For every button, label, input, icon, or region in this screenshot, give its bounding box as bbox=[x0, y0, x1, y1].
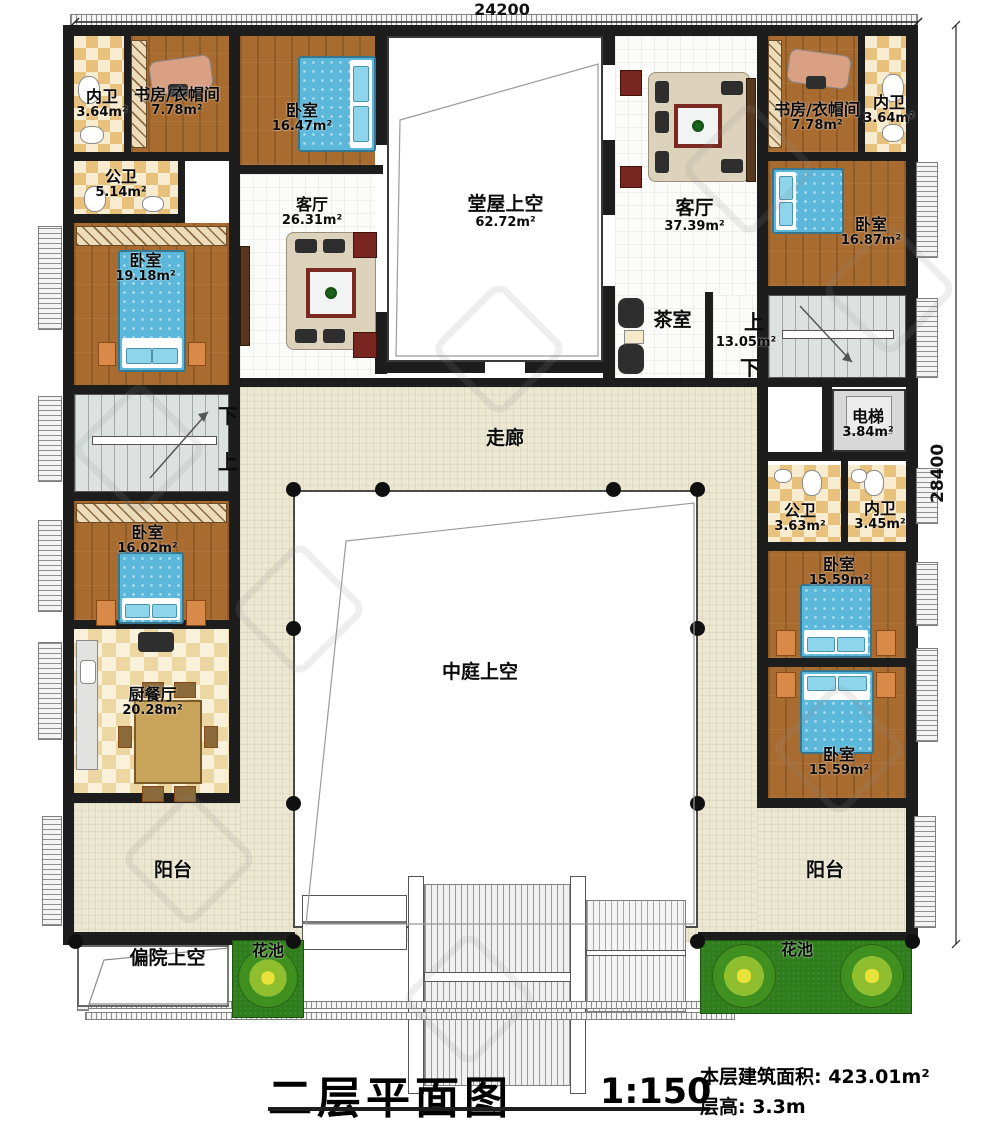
room-label-tea-area: 13.05m² bbox=[708, 336, 784, 351]
room-area: 20.28m² bbox=[95, 704, 210, 719]
column bbox=[690, 621, 705, 636]
tea-table bbox=[624, 330, 644, 344]
room-area: 5.14m² bbox=[76, 186, 166, 201]
window-hatch bbox=[38, 642, 62, 740]
window-hatch bbox=[42, 816, 62, 926]
room-label-elevator: 电梯 3.84m² bbox=[830, 408, 906, 441]
nightstand bbox=[188, 342, 206, 366]
room-name: 客厅 bbox=[632, 198, 757, 220]
side-table bbox=[353, 332, 377, 358]
room-name: 厨餐厅 bbox=[95, 686, 210, 704]
plant bbox=[325, 287, 337, 299]
room-label-bedroom-1687: 卧室 16.87m² bbox=[812, 216, 930, 249]
room-area: 19.18m² bbox=[88, 270, 203, 285]
courtyard-void bbox=[293, 490, 698, 928]
nightstand bbox=[98, 342, 116, 366]
pillow bbox=[837, 637, 865, 652]
room-label-bedroom-1559b: 卧室 15.59m² bbox=[780, 746, 898, 779]
room-name: 公卫 bbox=[76, 168, 166, 186]
pillow bbox=[807, 637, 835, 652]
column bbox=[375, 482, 390, 497]
nightstand bbox=[876, 672, 896, 698]
dining-chair bbox=[204, 726, 218, 748]
window-hatch bbox=[914, 816, 936, 928]
pillow bbox=[152, 348, 178, 364]
room-name: 电梯 bbox=[830, 408, 906, 426]
room-label-living-left: 客厅 26.31m² bbox=[252, 196, 372, 229]
room-label-flower-bed-left: 花池 bbox=[236, 942, 300, 960]
room-name: 公卫 bbox=[762, 502, 838, 520]
room-name: 茶室 bbox=[640, 310, 705, 332]
nightstand bbox=[876, 630, 896, 656]
wall-segment bbox=[63, 152, 233, 161]
sink bbox=[851, 469, 867, 483]
room-name: 卧室 bbox=[243, 102, 361, 120]
room-area: 3.63m² bbox=[762, 520, 838, 535]
wall-segment bbox=[757, 658, 915, 667]
room-label-bath-right: 内卫 3.45m² bbox=[842, 500, 918, 533]
room-area: 16.02m² bbox=[90, 542, 205, 557]
window-hatch bbox=[38, 226, 62, 330]
sofa-cushion bbox=[323, 239, 345, 253]
sofa-cushion bbox=[655, 111, 669, 133]
wall-segment bbox=[63, 25, 918, 36]
column bbox=[286, 796, 301, 811]
room-area: 15.59m² bbox=[780, 764, 898, 779]
room-label-balcony-left: 阳台 bbox=[138, 860, 208, 882]
walkway-left bbox=[302, 895, 407, 950]
dining-chair bbox=[142, 786, 164, 802]
sofa-cushion bbox=[295, 239, 317, 253]
room-label-living-right: 客厅 37.39m² bbox=[632, 198, 757, 235]
wall-segment bbox=[63, 25, 74, 944]
wall-segment bbox=[603, 286, 615, 387]
room-label-public-bath-right: 公卫 3.63m² bbox=[762, 502, 838, 535]
room-area: 3.64m² bbox=[850, 112, 928, 127]
room-name: 卧室 bbox=[88, 252, 203, 270]
window-hatch bbox=[916, 648, 938, 742]
side-table bbox=[620, 166, 642, 188]
column bbox=[690, 934, 705, 949]
floor-height-text: 层高: 3.3m bbox=[700, 1092, 806, 1119]
dining-chair bbox=[118, 726, 132, 748]
pillow bbox=[126, 348, 152, 364]
closet-hatch-bedroom-1918 bbox=[76, 226, 227, 246]
walkway-right-landing bbox=[586, 950, 686, 956]
room-name: 阳台 bbox=[138, 860, 208, 882]
room-area: 62.72m² bbox=[438, 216, 573, 231]
column bbox=[286, 482, 301, 497]
wall-segment bbox=[757, 452, 918, 461]
room-label-kitchen-dining: 厨餐厅 20.28m² bbox=[95, 686, 210, 719]
room-name: 卧室 bbox=[780, 556, 898, 574]
walkway-right-steps bbox=[586, 900, 686, 1012]
wall-segment bbox=[375, 25, 387, 145]
room-area: 16.87m² bbox=[812, 234, 930, 249]
room-name: 内卫 bbox=[850, 94, 928, 112]
stair-up-label-left: 上 bbox=[218, 446, 238, 475]
room-area: 26.31m² bbox=[252, 214, 372, 229]
column bbox=[68, 934, 83, 949]
room-label-corridor: 走廊 bbox=[465, 428, 545, 450]
pillow bbox=[125, 604, 150, 618]
column bbox=[690, 482, 705, 497]
bed bbox=[800, 584, 872, 658]
stair-up-label-right: 上 bbox=[744, 306, 764, 335]
kitchen-sink bbox=[80, 660, 96, 684]
room-label-bedroom-1647: 卧室 16.47m² bbox=[243, 102, 361, 135]
page-title: 二层平面图 bbox=[268, 1062, 513, 1126]
room-name: 卧室 bbox=[812, 216, 930, 234]
room-name: 偏院上空 bbox=[105, 948, 230, 970]
room-label-bedroom-1918: 卧室 19.18m² bbox=[88, 252, 203, 285]
window-hatch bbox=[38, 396, 62, 482]
room-area: 16.47m² bbox=[243, 120, 361, 135]
window-hatch bbox=[916, 562, 938, 626]
column bbox=[606, 482, 621, 497]
room-label-flower-bed-right: 花池 bbox=[762, 941, 832, 959]
title-underline bbox=[268, 1107, 710, 1111]
wall-segment bbox=[229, 378, 918, 387]
tree bbox=[840, 944, 904, 1008]
wall-segment bbox=[63, 214, 185, 223]
side-table bbox=[620, 70, 642, 96]
pillow bbox=[353, 66, 369, 102]
room-name: 内卫 bbox=[842, 500, 918, 518]
toilet bbox=[864, 470, 884, 496]
desk-monitor bbox=[806, 76, 826, 89]
room-name: 客厅 bbox=[252, 196, 372, 214]
wall-segment bbox=[229, 165, 383, 174]
room-area: 13.05m² bbox=[708, 336, 784, 351]
dimension-width: 24200 bbox=[462, 0, 542, 19]
nightstand bbox=[96, 600, 116, 626]
nightstand bbox=[186, 600, 206, 626]
build-area-text: 本层建筑面积: 423.01m² bbox=[700, 1062, 930, 1089]
room-label-balcony-right: 阳台 bbox=[790, 860, 860, 882]
sink bbox=[80, 126, 104, 144]
tea-chair bbox=[618, 344, 644, 374]
wall-segment bbox=[603, 140, 615, 215]
window-hatch bbox=[38, 520, 62, 612]
toilet bbox=[802, 470, 822, 496]
room-name: 走廊 bbox=[465, 428, 545, 450]
wall-segment bbox=[603, 25, 615, 65]
sofa-cushion bbox=[655, 81, 669, 103]
room-area: 7.78m² bbox=[112, 104, 242, 119]
room-label-public-bath-left: 公卫 5.14m² bbox=[76, 168, 166, 201]
room-name: 书房/衣帽间 bbox=[112, 86, 242, 104]
room-name: 卧室 bbox=[780, 746, 898, 764]
pillow bbox=[152, 604, 177, 618]
room-label-bath-top-right: 内卫 3.64m² bbox=[850, 94, 928, 127]
bed bbox=[118, 552, 184, 624]
room-label-bedroom-1602: 卧室 16.02m² bbox=[90, 524, 205, 557]
column bbox=[690, 796, 705, 811]
wall-segment bbox=[757, 542, 915, 551]
room-name: 花池 bbox=[762, 941, 832, 959]
stair-down-label-left: 下 bbox=[218, 400, 238, 429]
room-area: 37.39m² bbox=[632, 220, 757, 235]
bottom-railing-2 bbox=[85, 1012, 735, 1020]
grand-stair-post-right bbox=[570, 876, 586, 1094]
sofa-cushion bbox=[655, 151, 669, 173]
sink bbox=[774, 469, 792, 483]
room-name: 花池 bbox=[236, 942, 300, 960]
wall-segment bbox=[705, 292, 713, 378]
tv-cabinet bbox=[240, 246, 250, 346]
dimension-height: 28400 bbox=[928, 418, 952, 528]
stair-down-label-right: 下 bbox=[740, 352, 760, 381]
room-area: 3.45m² bbox=[842, 518, 918, 533]
page-scale: 1:150 bbox=[600, 1072, 711, 1112]
room-name: 阳台 bbox=[790, 860, 860, 882]
room-label-side-yard: 偏院上空 bbox=[105, 948, 230, 970]
column bbox=[905, 934, 920, 949]
sofa-cushion bbox=[323, 329, 345, 343]
closet-hatch-bedroom-1602 bbox=[76, 503, 227, 523]
nightstand bbox=[776, 672, 796, 698]
wall-segment bbox=[178, 152, 185, 223]
sofa-cushion bbox=[295, 329, 317, 343]
sofa-cushion bbox=[721, 81, 743, 95]
floor-plan-page: { "dimensions": { "width_label": "24200"… bbox=[0, 0, 1000, 1121]
room-area: 3.84m² bbox=[830, 426, 906, 441]
room-name: 卧室 bbox=[90, 524, 205, 542]
room-label-bedroom-1559a: 卧室 15.59m² bbox=[780, 556, 898, 589]
room-label-study-top-left: 书房/衣帽间 7.78m² bbox=[112, 86, 242, 119]
room-name: 中庭上空 bbox=[415, 662, 545, 684]
cooktop bbox=[138, 632, 174, 652]
room-name: 堂屋上空 bbox=[438, 194, 573, 216]
room-area: 15.59m² bbox=[780, 574, 898, 589]
wall-segment bbox=[858, 25, 865, 157]
room-label-courtyard: 中庭上空 bbox=[415, 662, 545, 684]
room-label-hall-void: 堂屋上空 62.72m² bbox=[438, 194, 573, 231]
nightstand bbox=[776, 630, 796, 656]
side-table bbox=[353, 232, 377, 258]
room-label-tea: 茶室 bbox=[640, 310, 705, 332]
plant bbox=[692, 120, 704, 132]
